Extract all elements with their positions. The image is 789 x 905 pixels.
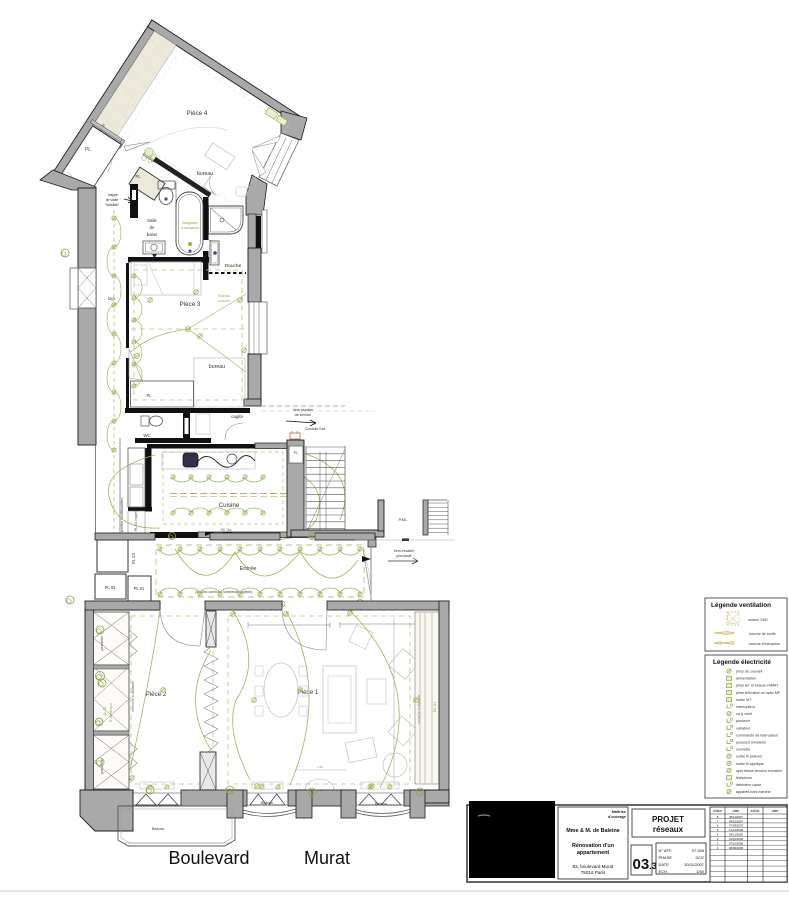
svg-text:Asc.: Asc. xyxy=(399,517,408,522)
svg-text:bureau: bureau xyxy=(209,364,225,370)
svg-text:Boulevard: Boulevard xyxy=(168,848,249,868)
svg-text:trappe: trappe xyxy=(108,193,118,197)
svg-text:DCE: DCE xyxy=(696,855,705,860)
svg-text:poussoir minuterie: poussoir minuterie xyxy=(736,741,766,745)
svg-text:de service: de service xyxy=(295,413,311,417)
svg-text:Mme & M. de Baleine: Mme & M. de Baleine xyxy=(566,828,620,834)
svg-text:04/10/2007: 04/10/2007 xyxy=(729,819,743,823)
svg-text:30/11/2007: 30/11/2007 xyxy=(729,815,743,819)
svg-text:PL: PL xyxy=(85,147,91,153)
svg-text:prise de courant: prise de courant xyxy=(736,670,762,674)
svg-text:indice: indice xyxy=(713,809,722,813)
svg-text:Douche: Douche xyxy=(225,263,242,269)
svg-text:téléphone: téléphone xyxy=(736,776,752,780)
svg-text:1/50: 1/50 xyxy=(696,869,705,874)
svg-text:penderie: penderie xyxy=(100,636,104,651)
svg-text:date: date xyxy=(772,809,779,813)
svg-text:Murat: Murat xyxy=(304,848,350,868)
svg-text:bouche de sortie: bouche de sortie xyxy=(749,632,776,636)
svg-text:de: de xyxy=(150,225,155,230)
svg-text:PL 02: PL 02 xyxy=(105,585,116,590)
svg-text:Pièce 4: Pièce 4 xyxy=(187,110,208,117)
svg-text:PL 01: PL 01 xyxy=(134,586,145,591)
svg-text:variateur: variateur xyxy=(736,726,751,730)
svg-text:sortie fil applique: sortie fil applique xyxy=(736,762,764,766)
svg-text:plafond corniche lumineuse (op: plafond corniche lumineuse (option) xyxy=(196,590,253,594)
svg-text:Balcon: Balcon xyxy=(152,826,164,831)
svg-text:Rénovation d'un: Rénovation d'un xyxy=(572,843,614,849)
svg-text:spot basse tension encastré: spot basse tension encastré xyxy=(736,769,782,773)
svg-text:Conduits Gaz: Conduits Gaz xyxy=(305,427,326,431)
svg-text:Légende ventilation: Légende ventilation xyxy=(711,602,771,609)
svg-text:AL 01: AL 01 xyxy=(103,706,107,716)
svg-text:Maîtrise: Maîtrise xyxy=(612,810,626,814)
svg-text:21/10/2006: 21/10/2006 xyxy=(729,837,743,841)
svg-text:bouche d'extraction: bouche d'extraction xyxy=(749,642,780,646)
svg-text:d'ouvrage: d'ouvrage xyxy=(608,815,626,819)
svg-text:R. électrique: R. électrique xyxy=(109,703,113,722)
svg-text:PL 04 lingerie: PL 04 lingerie xyxy=(134,509,138,531)
svg-text:bureau: bureau xyxy=(197,171,213,177)
svg-text:sortie fil plafond: sortie fil plafond xyxy=(736,755,762,759)
svg-text:prise télévision et radio MF: prise télévision et radio MF xyxy=(736,691,781,695)
svg-text:Vers escalier: Vers escalier xyxy=(293,408,314,412)
svg-text:à encastrer: à encastrer xyxy=(181,226,200,230)
svg-text:30/11/2007: 30/11/2007 xyxy=(684,862,704,867)
svg-text:93, boulevard Murat: 93, boulevard Murat xyxy=(573,864,615,869)
svg-text:Légende électricité: Légende électricité xyxy=(713,659,771,666)
svg-text:PROJET: PROJET xyxy=(652,815,684,824)
svg-text:PL: PL xyxy=(294,451,298,455)
svg-text:08/09/2006: 08/09/2006 xyxy=(729,846,743,850)
svg-text:appareil hors marché: appareil hors marché xyxy=(736,790,771,794)
svg-text:PL: PL xyxy=(135,174,141,179)
svg-text:appartement: appartement xyxy=(577,850,610,856)
svg-text:réseaux: réseaux xyxy=(653,825,684,834)
svg-text:PL: PL xyxy=(146,393,152,398)
svg-text:date: date xyxy=(733,809,740,813)
svg-text:"invisible": "invisible" xyxy=(105,203,120,207)
svg-text:Salle: Salle xyxy=(147,218,157,223)
svg-text:07 549: 07 549 xyxy=(692,848,705,853)
svg-text:Vers escalier: Vers escalier xyxy=(394,549,415,553)
svg-text:sortie MT: sortie MT xyxy=(736,698,752,702)
svg-text:WC: WC xyxy=(143,433,150,438)
svg-text:moteur VMC: moteur VMC xyxy=(748,618,769,622)
svg-text:Pièce 3: Pièce 3 xyxy=(180,301,201,308)
svg-text:détecteur radar: détecteur radar xyxy=(736,783,762,787)
svg-text:corniche à déplacer: corniche à déplacer xyxy=(131,680,135,712)
svg-text:de visite: de visite xyxy=(106,198,119,202)
svg-text:1,60: 1,60 xyxy=(317,765,323,769)
svg-text:Baignoire: Baignoire xyxy=(182,221,197,225)
svg-text:N° AFF.: N° AFF. xyxy=(659,848,673,853)
svg-text:DATE: DATE xyxy=(659,862,670,867)
svg-text:Dgt.: Dgt. xyxy=(108,296,116,301)
svg-text:bains: bains xyxy=(147,232,158,237)
svg-text:75016 Paris: 75016 Paris xyxy=(581,870,606,875)
svg-text:Rideaux: Rideaux xyxy=(218,294,231,298)
svg-text:PL 03: PL 03 xyxy=(131,553,136,564)
svg-text:Balcon: Balcon xyxy=(261,800,273,805)
svg-text:RD 16a: RD 16a xyxy=(221,528,232,532)
svg-text:Balcon: Balcon xyxy=(375,801,387,806)
svg-text:commande de télérupteur: commande de télérupteur xyxy=(736,733,779,737)
svg-text:ÉCH.: ÉCH. xyxy=(659,869,669,874)
svg-text:indice: indice xyxy=(751,809,760,813)
svg-text:prise tél. et réseau HiMAT: prise tél. et réseau HiMAT xyxy=(736,684,779,688)
svg-text:sonnette: sonnette xyxy=(736,748,750,752)
svg-text:à fournir: à fournir xyxy=(218,299,231,303)
svg-text:09/11/2006: 09/11/2006 xyxy=(729,833,743,837)
svg-text:va & vient: va & vient xyxy=(736,712,752,716)
svg-text:interrupteur: interrupteur xyxy=(736,705,756,709)
svg-text:07/09/2007: 07/09/2007 xyxy=(729,824,743,828)
svg-text:BL 01: BL 01 xyxy=(432,701,437,712)
svg-text:PHASE: PHASE xyxy=(659,855,673,860)
svg-text:14/12/2006: 14/12/2006 xyxy=(729,828,743,832)
svg-text:alimentation: alimentation xyxy=(736,677,756,681)
svg-text:07/10/2006: 07/10/2006 xyxy=(729,842,743,846)
svg-text:cagibi: cagibi xyxy=(231,414,243,419)
svg-text:principale: principale xyxy=(396,554,411,558)
svg-text:poussoir: poussoir xyxy=(736,719,751,723)
